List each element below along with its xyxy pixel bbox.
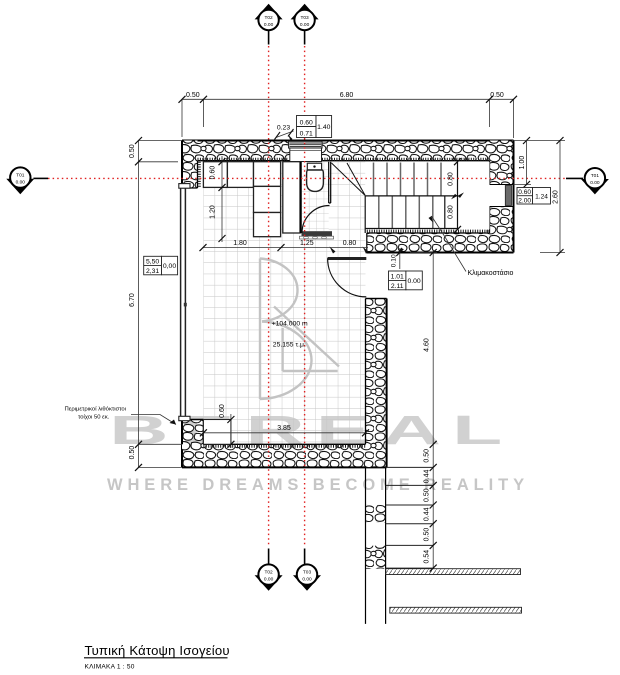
svg-text:6.70: 6.70 [129,293,136,307]
svg-text:0.50: 0.50 [129,144,136,158]
svg-text:1.24: 1.24 [535,193,548,200]
svg-text:T03: T03 [303,570,312,576]
svg-text:0.50: 0.50 [424,528,431,542]
svg-text:6.80: 6.80 [340,92,354,99]
svg-text:1.01: 1.01 [391,273,404,280]
svg-text:0.54: 0.54 [424,550,431,564]
svg-text:0.00: 0.00 [264,577,274,583]
svg-text:0.80: 0.80 [448,172,455,186]
svg-text:5,50: 5,50 [146,259,159,266]
svg-text:0.00: 0.00 [407,278,420,285]
svg-text:0.60: 0.60 [219,404,226,418]
svg-text:25.155 τ.μ.: 25.155 τ.μ. [273,341,306,348]
svg-text:2,31: 2,31 [146,268,159,275]
svg-text:T02: T02 [264,570,273,576]
svg-text:0.00: 0.00 [590,180,600,186]
svg-text:0.50: 0.50 [186,92,200,99]
svg-text:+104.000 m: +104.000 m [272,321,308,328]
svg-text:Κλιμακοστάσιο: Κλιμακοστάσιο [468,269,514,277]
svg-text:4.60: 4.60 [424,338,431,352]
svg-text:τοίχοι 50 εκ.: τοίχοι 50 εκ. [78,415,110,421]
svg-text:0.50: 0.50 [490,92,504,99]
svg-text:WHERE DREAMS BECOME REALITY: WHERE DREAMS BECOME REALITY [107,476,529,494]
svg-text:0.50: 0.50 [129,446,136,460]
svg-text:T01: T01 [16,173,25,179]
svg-text:0.00: 0.00 [300,22,310,28]
svg-text:T03: T03 [300,15,309,21]
svg-text:1.80: 1.80 [233,240,247,247]
svg-text:0.10: 0.10 [391,254,398,267]
svg-text:0.00: 0.00 [264,22,274,28]
svg-text:0.00: 0.00 [302,577,312,583]
svg-text:0,00: 0,00 [163,263,176,270]
svg-text:0.80: 0.80 [343,240,357,247]
svg-text:1.40: 1.40 [317,124,330,131]
svg-text:0.60: 0.60 [518,189,531,196]
svg-text:0.60: 0.60 [210,166,217,180]
svg-text:Τυπική Κάτοψη Ισογείου: Τυπική Κάτοψη Ισογείου [85,643,230,658]
svg-text:0.44: 0.44 [424,469,431,483]
svg-text:1.20: 1.20 [210,205,217,219]
svg-text:3.85: 3.85 [277,425,291,432]
svg-text:0.44: 0.44 [424,507,431,521]
svg-text:0.23: 0.23 [277,125,290,132]
svg-text:0.50: 0.50 [424,449,431,463]
svg-text:0.50: 0.50 [424,488,431,502]
svg-text:0.80: 0.80 [448,205,455,219]
svg-text:1.00: 1.00 [519,156,526,170]
svg-text:Περιμετρικοί λιθόκτιστοι: Περιμετρικοί λιθόκτιστοι [65,406,127,413]
svg-text:1.25: 1.25 [300,240,314,247]
svg-text:T01: T01 [591,173,600,179]
svg-text:2.00: 2.00 [518,198,531,205]
svg-text:0.71: 0.71 [300,130,313,137]
svg-text:ΚΛΙΜΑΚΑ 1 : 50: ΚΛΙΜΑΚΑ 1 : 50 [85,664,135,671]
svg-text:0.60: 0.60 [300,119,313,126]
svg-text:2.11: 2.11 [391,283,404,290]
svg-text:T02: T02 [264,15,273,21]
svg-text:0.00: 0.00 [16,180,26,186]
svg-text:2.60: 2.60 [553,190,560,204]
